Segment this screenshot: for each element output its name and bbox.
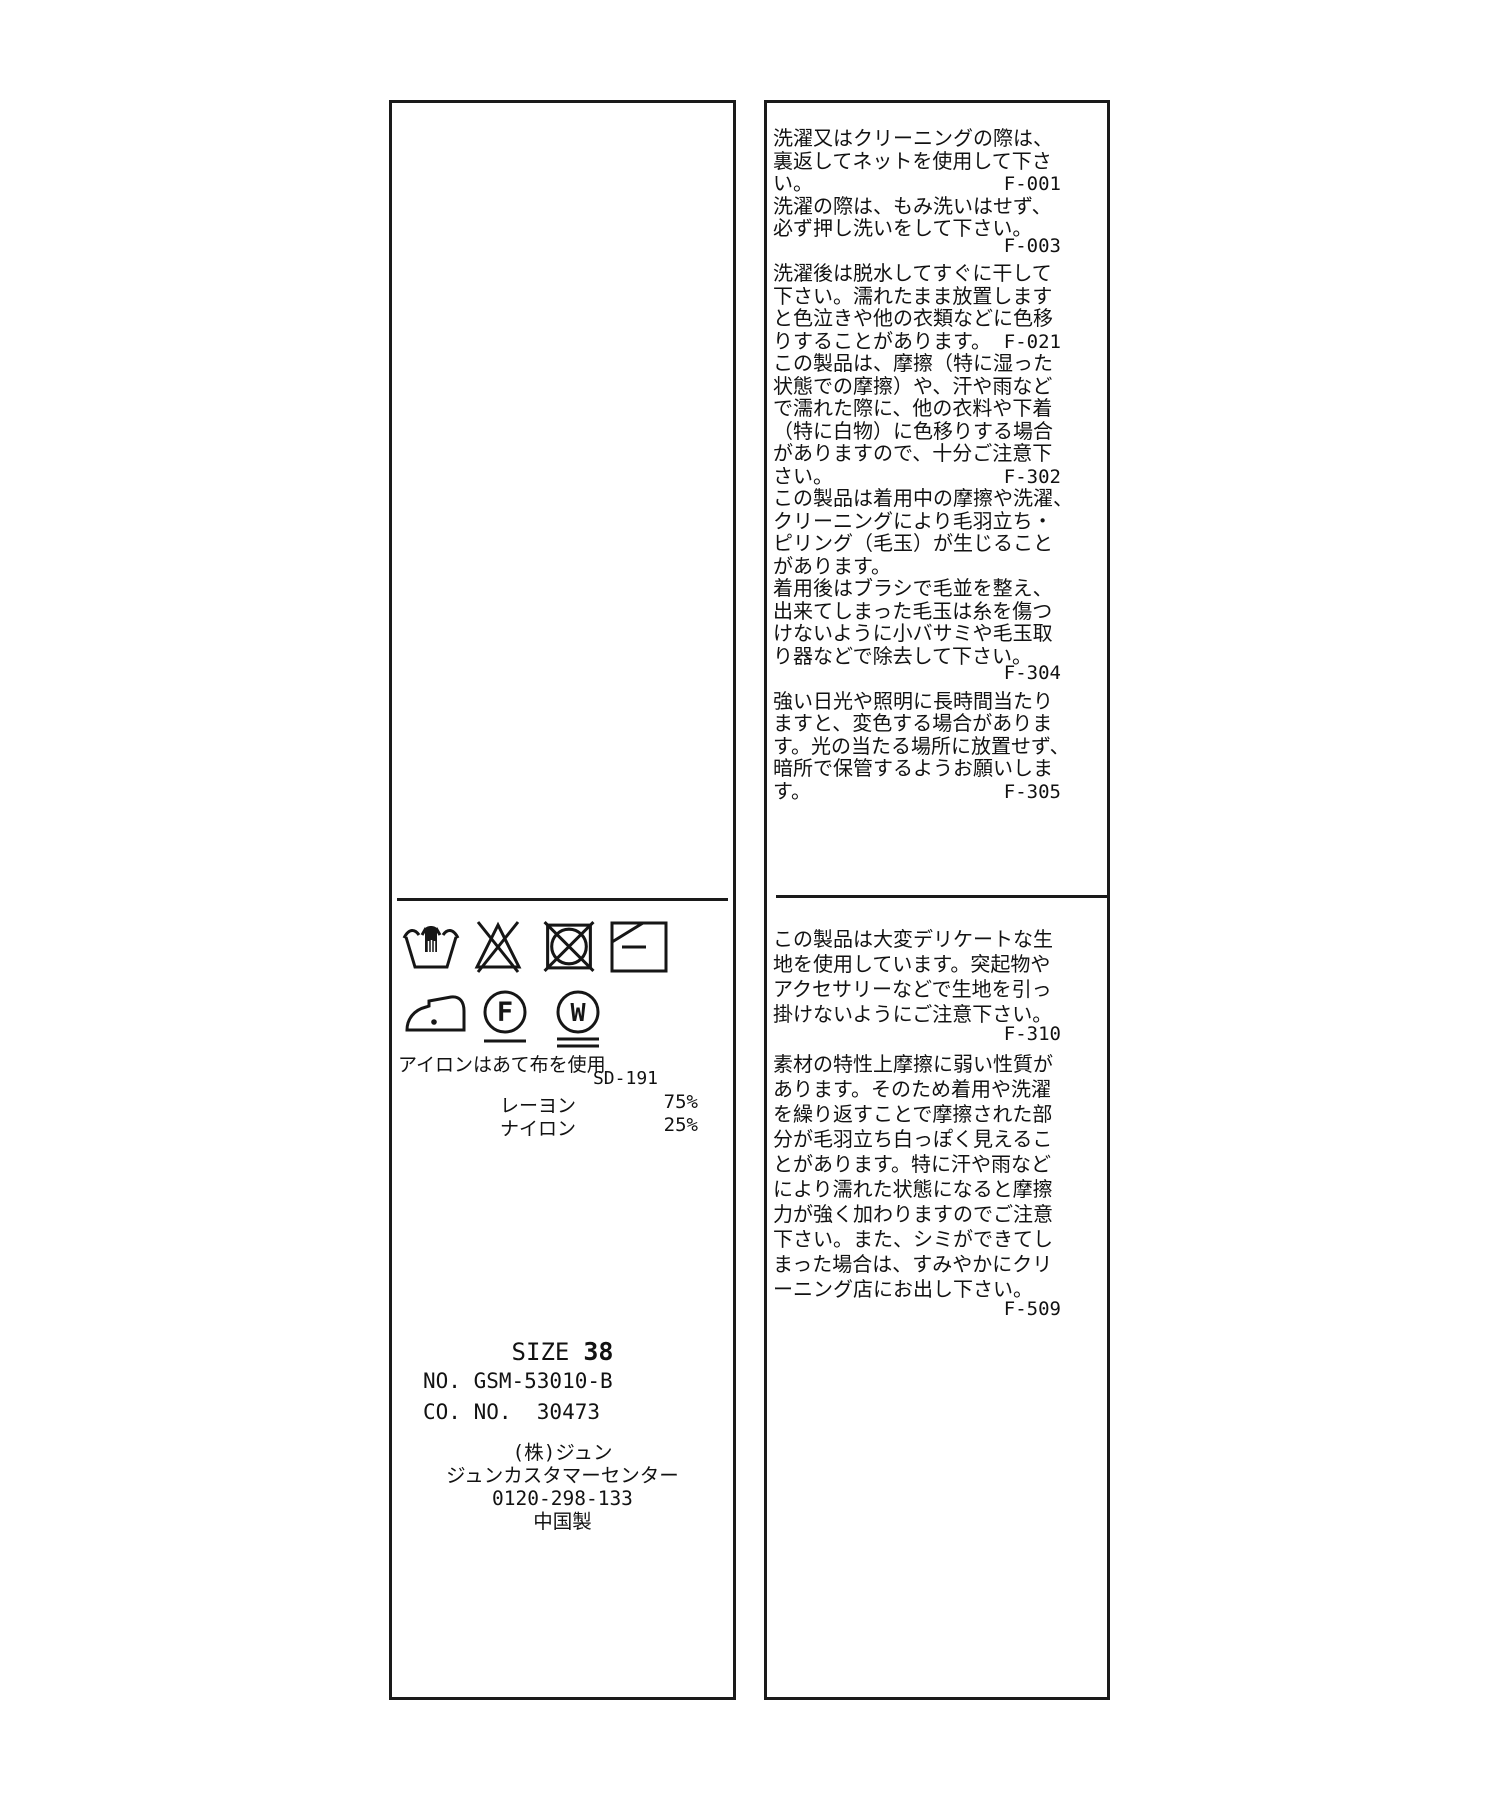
care-text-line: により濡れた状態になると摩擦 <box>773 1173 1061 1198</box>
care-text-line: と色泣きや他の衣類などに色移 <box>773 302 1061 325</box>
material-percent: 75% <box>664 1091 698 1114</box>
hand-wash-icon <box>402 921 460 971</box>
iron-note: アイロンはあて布を使用 <box>398 1050 606 1077</box>
care-text-line: 分が毛羽立ち白っぽく見えるこ <box>773 1123 1061 1148</box>
material-percent: 25% <box>664 1114 698 1137</box>
composition-table: レーヨン 75% ナイロン 25% <box>500 1091 698 1137</box>
care-text-line: （特に白物）に色移りする場合 <box>773 415 1061 438</box>
dry-flat-in-shade-icon <box>609 920 669 974</box>
material-name: ナイロン <box>500 1114 576 1137</box>
size-value: 38 <box>583 1337 613 1366</box>
maker-info-line: (株)ジュン <box>392 1441 733 1464</box>
do-not-tumble-dry-icon <box>540 918 598 975</box>
care-text-line: 暗所で保管するようお願いしま <box>773 752 1061 775</box>
quality-code: SD-191 <box>593 1068 658 1089</box>
care-text-line: アクセサリーなどで生地を引っ <box>773 973 1061 998</box>
care-text-line: この製品は大変デリケートな生 <box>773 923 1061 948</box>
iron-low-heat-icon <box>403 993 467 1037</box>
care-text-line: 下さい。濡れたまま放置します <box>773 280 1061 303</box>
care-text-line: とがあります。特に汗や雨など <box>773 1148 1061 1173</box>
maker-info-line: 0120-298-133 <box>392 1487 733 1510</box>
f-code: F-305 <box>1004 781 1061 803</box>
care-text-line: 必ず押し洗いをして下さい。 <box>773 212 1061 235</box>
care-text-line: がありますので、十分ご注意下 <box>773 437 1061 460</box>
composition-row: ナイロン 25% <box>500 1114 698 1137</box>
wet-clean-icon: W <box>553 989 603 1051</box>
do-not-bleach-icon <box>470 916 526 974</box>
wet-clean-letter: W <box>570 998 586 1027</box>
care-text-line: あります。そのため着用や洗濯 <box>773 1073 1061 1098</box>
care-text-block-1: 洗濯又はクリーニングの際は、 裏返してネットを使用して下さ い。 F-001 洗… <box>773 122 1061 797</box>
care-text-block-2: この製品は大変デリケートな生 地を使用しています。突起物や アクセサリーなどで生… <box>773 923 1061 1323</box>
care-text-line: 洗濯後は脱水してすぐに干して <box>773 257 1061 280</box>
dry-clean-letter: F <box>497 997 513 1028</box>
material-name: レーヨン <box>500 1091 576 1114</box>
size-label: SIZE <box>512 1338 570 1366</box>
care-text-line: ますと、変色する場合がありま <box>773 707 1061 730</box>
care-text-line: り器などで除去して下さい。 <box>773 640 1061 663</box>
care-text-line: 下さい。また、シミができてし <box>773 1223 1061 1248</box>
care-text-line: ピリング（毛玉）が生じること <box>773 527 1061 550</box>
care-text-line: 裏返してネットを使用して下さ <box>773 145 1061 168</box>
care-text-line: を繰り返すことで摩擦された部 <box>773 1098 1061 1123</box>
right-label-panel: 洗濯又はクリーニングの際は、 裏返してネットを使用して下さ い。 F-001 洗… <box>764 100 1110 1700</box>
care-text-line: クリーニングにより毛羽立ち・ <box>773 505 1061 528</box>
garment-care-label-sheet: { "left_panel": { "care_symbols": { "row… <box>0 0 1500 1800</box>
care-text-line: この製品は、摩擦（特に湿った <box>773 347 1061 370</box>
care-text-line: まった場合は、すみやかにクリ <box>773 1248 1061 1273</box>
care-text-line: 着用後はブラシで毛並を整え、 <box>773 572 1061 595</box>
care-text-line: ーニング店にお出し下さい。 <box>773 1273 1061 1298</box>
care-text-line: けないように小バサミや毛玉取 <box>773 617 1061 640</box>
maker-info-block: (株)ジュン ジュンカスタマーセンター 0120-298-133 中国製 <box>392 1441 733 1533</box>
right-panel-divider <box>776 895 1107 898</box>
left-label-panel: F W アイロンはあて布を使用 SD-191 レーヨン 75% ナイロン 25%… <box>389 100 736 1700</box>
size-row: SIZE38 <box>392 1337 733 1366</box>
care-text-line: 素材の特性上摩擦に弱い性質が <box>773 1048 1061 1073</box>
f-code: F-304 <box>1004 662 1061 684</box>
care-text-line: 強い日光や照明に長時間当たり <box>773 685 1061 708</box>
product-number: NO. GSM-53010-B <box>423 1369 613 1393</box>
f-code: F-310 <box>1004 1023 1061 1045</box>
composition-row: レーヨン 75% <box>500 1091 698 1114</box>
care-text-line: 地を使用しています。突起物や <box>773 948 1061 973</box>
left-panel-divider <box>397 898 728 901</box>
care-text-line: この製品は着用中の摩擦や洗濯、 <box>773 482 1061 505</box>
care-text-line: 力が強く加わりますのでご注意 <box>773 1198 1061 1223</box>
f-code: F-003 <box>1004 235 1061 257</box>
care-text-line: 洗濯の際は、もみ洗いはせず、 <box>773 190 1061 213</box>
care-text-line: 状態での摩擦）や、汗や雨など <box>773 370 1061 393</box>
care-text-line: 洗濯又はクリーニングの際は、 <box>773 122 1061 145</box>
care-text-line: す。光の当たる場所に放置せず、 <box>773 730 1061 753</box>
care-text-line: で濡れた際に、他の衣料や下着 <box>773 392 1061 415</box>
company-number: CO. NO. 30473 <box>423 1400 600 1424</box>
care-text-line: 出来てしまった毛玉は糸を傷つ <box>773 595 1061 618</box>
f-code: F-509 <box>1004 1298 1061 1320</box>
dry-clean-petroleum-icon: F <box>480 989 530 1047</box>
maker-info-line: 中国製 <box>392 1510 733 1533</box>
care-text-line: 掛けないようにご注意下さい。 <box>773 998 1061 1023</box>
maker-info-line: ジュンカスタマーセンター <box>392 1464 733 1487</box>
